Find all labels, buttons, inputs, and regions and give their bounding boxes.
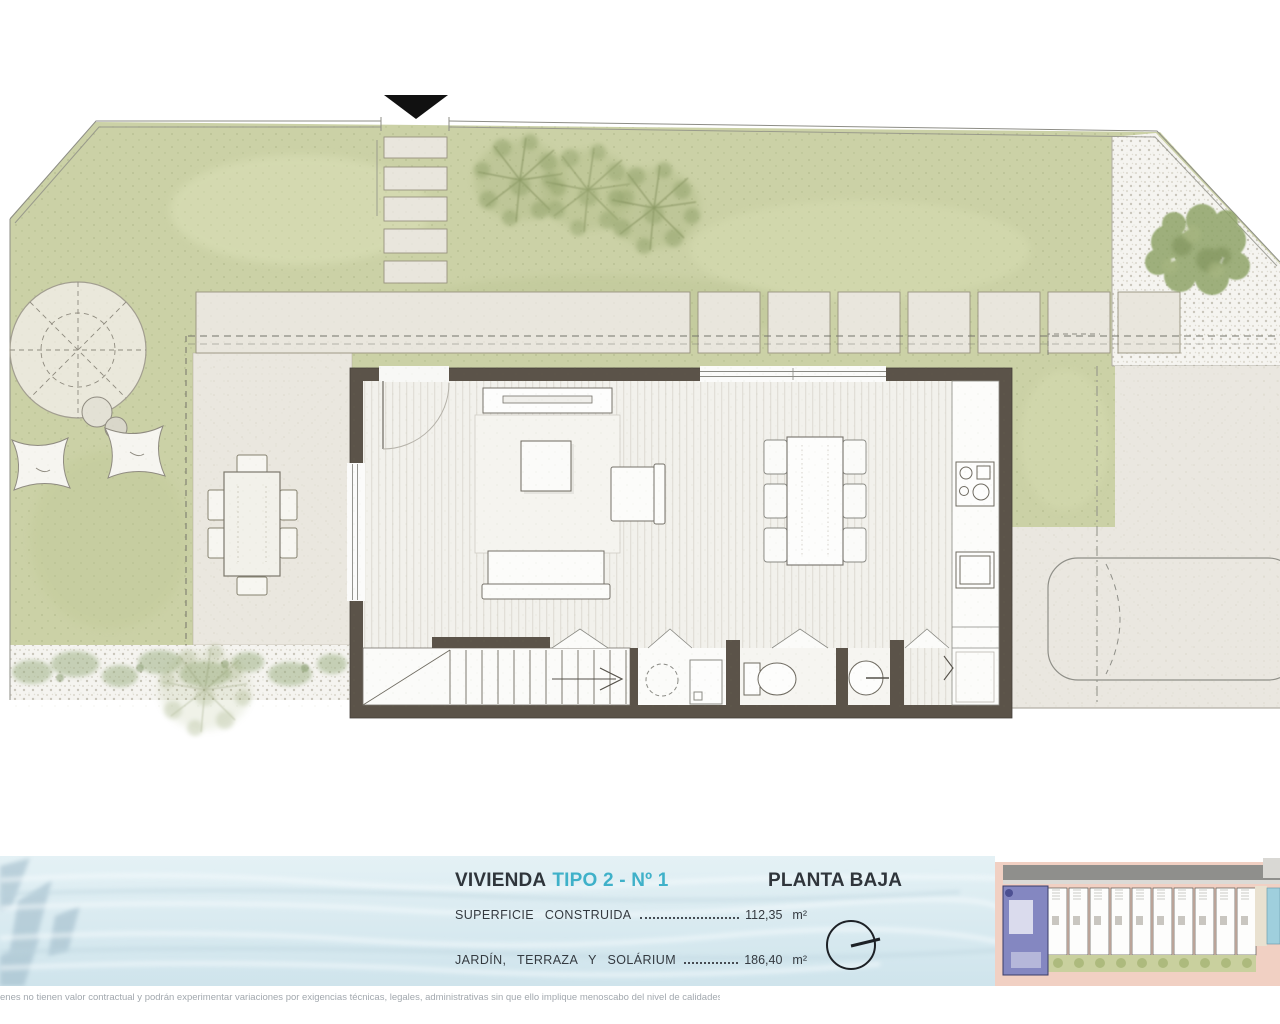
paper-texture — [0, 100, 1280, 720]
legal-disclaimer: enes no tienen valor contractual y podrá… — [0, 992, 720, 1003]
area-value: 186,40 — [744, 953, 782, 967]
dotted-leader — [640, 916, 740, 919]
unit-title-type: TIPO 2 - Nº 1 — [552, 870, 668, 891]
site-minimap — [995, 856, 1280, 986]
area-value: 112,35 — [745, 908, 782, 922]
brochure-page: VIVIENDATIPO 2 - Nº 1 PLANTA BAJA SUPERF… — [0, 0, 1280, 1024]
area-label: SUPERFICIE CONSTRUIDA — [455, 908, 632, 922]
unit-title: VIVIENDATIPO 2 - Nº 1 — [455, 870, 669, 892]
area-label: JARDÍN, TERRAZA Y SOLÁRIUM — [455, 953, 676, 967]
floor-title: PLANTA BAJA — [768, 870, 902, 892]
unit-title-prefix: VIVIENDA — [455, 870, 546, 891]
north-compass-icon — [820, 914, 890, 978]
area-unit: m² — [792, 908, 807, 922]
area-row-built-surface: SUPERFICIE CONSTRUIDA 112,35 m² — [455, 908, 807, 922]
area-unit: m² — [792, 953, 807, 967]
entrance-marker-icon — [384, 95, 448, 119]
minimap-pool — [1255, 886, 1280, 946]
footer-info-bar: VIVIENDATIPO 2 - Nº 1 PLANTA BAJA SUPERF… — [0, 856, 1280, 986]
area-row-garden-terrace: JARDÍN, TERRAZA Y SOLÁRIUM 186,40 m² — [455, 953, 807, 967]
floor-plan — [0, 0, 1280, 845]
minimap-highlighted-unit — [1003, 886, 1048, 975]
minimap-gardens — [1048, 955, 1256, 972]
dotted-leader — [684, 961, 738, 964]
